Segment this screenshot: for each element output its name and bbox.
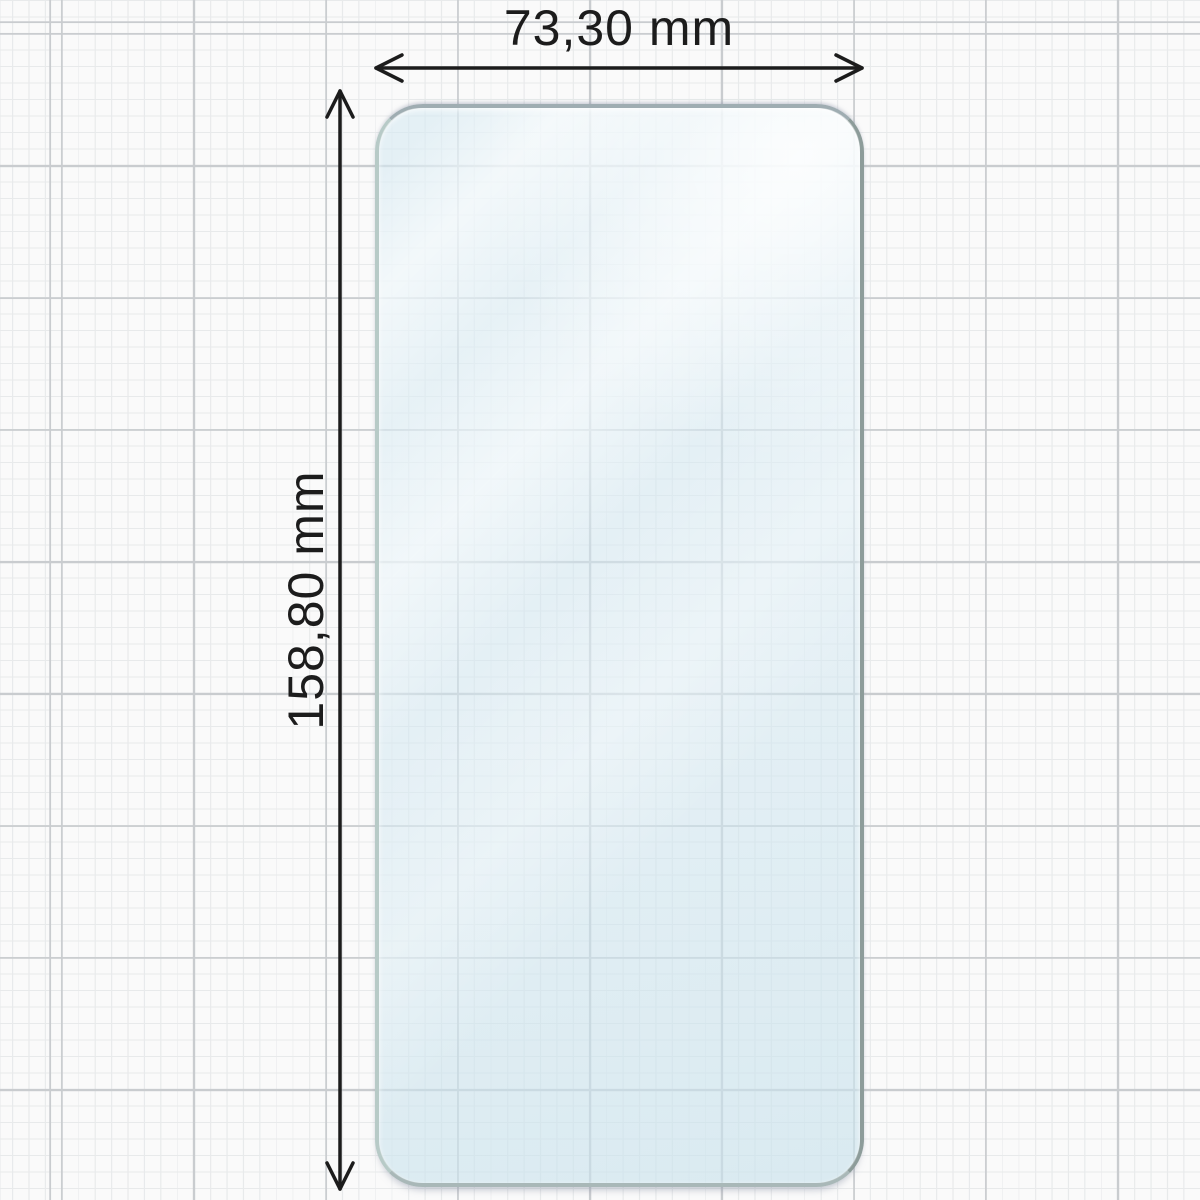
- screen-protector-film: [375, 104, 864, 1187]
- height-dimension-label: 158,80 mm: [277, 470, 335, 729]
- width-dimension-label: 73,30 mm: [504, 0, 734, 57]
- diagram-canvas: 73,30 mm 158,80 mm: [0, 0, 1200, 1200]
